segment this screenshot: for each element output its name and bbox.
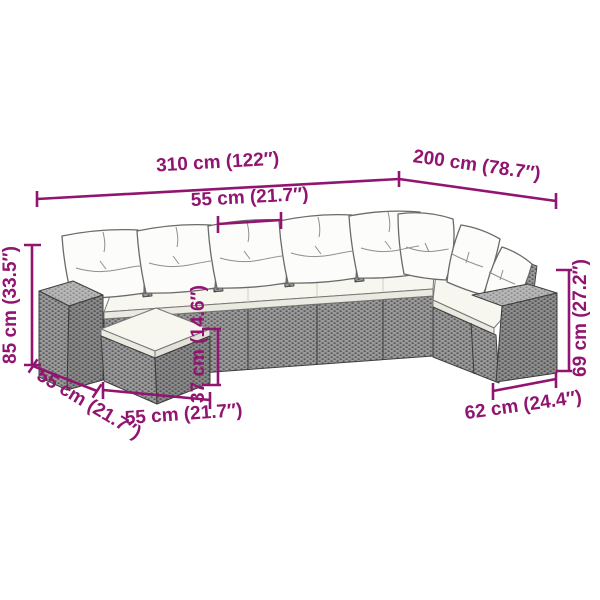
dim-total-height: 85 cm (33.5″) (0, 245, 41, 365)
dim-armrest-height-label: 69 cm (27.2″) (570, 259, 591, 377)
dim-seat-height-label: 37 cm (14.6″) (188, 285, 209, 403)
dim-seat-width-label: 55 cm (21.7″) (190, 184, 309, 211)
dim-armrest-height: 69 cm (27.2″) (556, 259, 591, 377)
back-pillow (137, 225, 216, 294)
dim-right-depth: 200 cm (78.7″) (399, 146, 556, 209)
dim-armrest-depth: 62 cm (24.4″) (463, 372, 583, 424)
sofa-dimension-illustration: 310 cm (122″) 200 cm (78.7″) 55 cm (21.7… (0, 0, 600, 600)
left-armrest-front-shade (67, 295, 103, 390)
dim-total-height-line (24, 245, 41, 365)
dim-footstool-width-label: 55 cm (21.7″) (124, 400, 243, 429)
back-pillow (208, 220, 287, 289)
back-pillow (279, 215, 357, 284)
sofa-illustration (39, 211, 557, 404)
dim-total-height-label: 85 cm (33.5″) (0, 246, 21, 364)
dim-right-depth-label: 200 cm (78.7″) (412, 146, 542, 185)
dim-armrest-depth-label: 62 cm (24.4″) (463, 387, 583, 424)
right-armrest-front-shade (496, 293, 557, 382)
dimension-diagram: 310 cm (122″) 200 cm (78.7″) 55 cm (21.7… (0, 0, 600, 600)
dim-total-width-label: 310 cm (122″) (156, 149, 280, 177)
